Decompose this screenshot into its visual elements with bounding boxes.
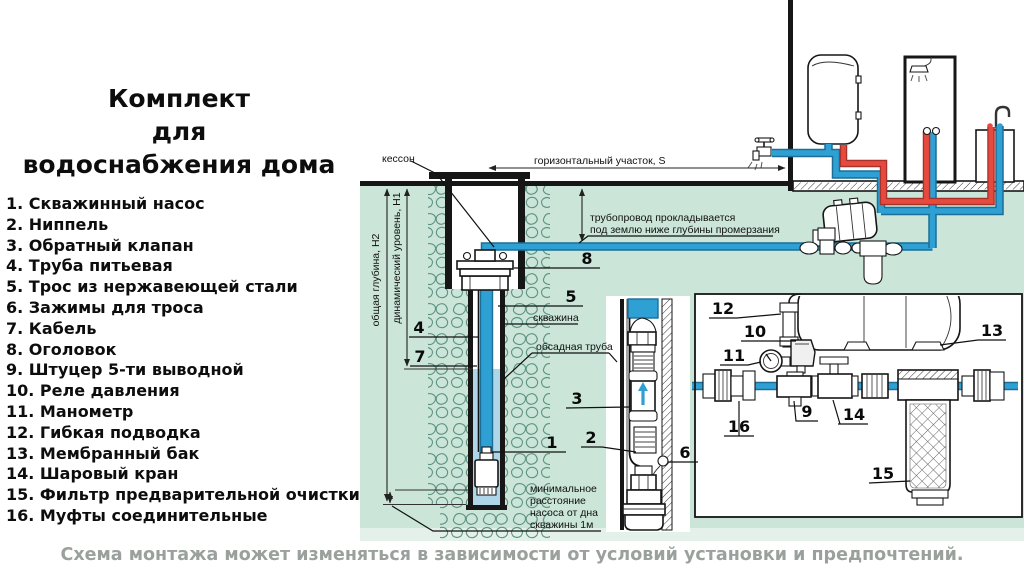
callout-14: 14 — [843, 405, 865, 424]
filter-detail — [898, 370, 958, 505]
legend-item-11: 11. Манометр — [6, 402, 366, 423]
nipple-detail — [634, 427, 656, 453]
legend-item-15: 15. Фильтр предварительной очистки — [6, 485, 366, 506]
callout-12: 12 — [712, 299, 734, 318]
coupling-16-detail — [703, 370, 755, 401]
callout-13: 13 — [981, 321, 1003, 340]
legend-item-9: 9. Штуцер 5-ти выводной — [6, 360, 366, 381]
legend-item-14: 14. Шаровый кран — [6, 464, 366, 485]
water-heater — [808, 55, 861, 144]
callout-8: 8 — [581, 249, 592, 268]
label-pipeline-1: трубопровод прокладывается — [590, 212, 735, 224]
legend-item-13: 13. Мембранный бак — [6, 444, 366, 465]
tap-drip — [748, 162, 762, 170]
label-pipeline-2: под землю ниже глубины промерзания — [590, 224, 780, 236]
legend-list: 1. Скважинный насос 2. Ниппель 3. Обратн… — [6, 194, 366, 527]
label-kesson: кессон — [382, 153, 415, 165]
callout-10: 10 — [744, 322, 766, 341]
callout-5: 5 — [565, 287, 576, 306]
label-total-depth: общая глубина, Н2 — [370, 233, 382, 326]
label-min-dist-4: скважины 1м — [530, 519, 593, 531]
shower-valve-cold — [933, 128, 940, 135]
label-casing-pipe: обсадная труба — [536, 341, 613, 353]
check-valve-detail — [629, 371, 657, 421]
legend-item-1: 1. Скважинный насос — [6, 194, 366, 215]
house-wall — [788, 0, 793, 191]
label-min-dist-1: минимальное — [530, 483, 597, 495]
callout-7: 7 — [414, 347, 425, 366]
label-min-dist-3: насоса от дна — [530, 507, 598, 519]
filter-real — [860, 241, 886, 284]
shower-head-icon — [910, 66, 928, 72]
callout-6: 6 — [679, 443, 690, 462]
legend-item-10: 10. Реле давления — [6, 381, 366, 402]
legend-item-8: 8. Оголовок — [6, 340, 366, 361]
screenshot-root: 8 5 4 7 1 2 3 6 12 10 11 13 9 — [0, 0, 1024, 576]
sink — [976, 107, 1014, 182]
label-min-dist-2: расстояние — [530, 495, 586, 507]
casing-wall-hatched — [662, 299, 672, 530]
callout-3: 3 — [571, 389, 582, 408]
shower-valve-hot — [924, 128, 931, 135]
callout-16: 16 — [728, 417, 750, 436]
legend-item-2: 2. Ниппель — [6, 215, 366, 236]
legend-item-5: 5. Трос из нержавеющей стали — [6, 277, 366, 298]
pump-detail-inset — [606, 296, 690, 532]
legend-item-16: 16. Муфты соединительные — [6, 506, 366, 527]
union-detail — [862, 374, 888, 398]
legend-item-7: 7. Кабель — [6, 319, 366, 340]
callout-11: 11 — [723, 346, 745, 365]
cable-clamp-detail — [658, 456, 668, 466]
callout-15: 15 — [872, 464, 894, 483]
pipe-cut — [628, 299, 658, 318]
legend-item-6: 6. Зажимы для троса — [6, 298, 366, 319]
callout-1: 1 — [546, 433, 557, 452]
footer-note: Схема монтажа может изменяться в зависим… — [0, 545, 1024, 565]
legend-item-4: 4. Труба питьевая — [6, 256, 366, 277]
wellhead — [457, 250, 513, 290]
label-dynamic-level: динамический уровень, Н1 — [391, 192, 403, 323]
legend-item-12: 12. Гибкая подводка — [6, 423, 366, 444]
well-drop-pipe — [479, 274, 493, 454]
outdoor-tap — [748, 138, 774, 170]
callout-2: 2 — [585, 428, 596, 447]
page-title: Комплект для водоснабжения дома — [0, 82, 358, 181]
label-horizontal-section: горизонтальный участок, S — [534, 155, 666, 167]
callout-4: 4 — [413, 318, 424, 337]
label-borehole: скважина — [533, 312, 579, 324]
legend-item-3: 3. Обратный клапан — [6, 236, 366, 257]
callout-9: 9 — [801, 402, 812, 421]
